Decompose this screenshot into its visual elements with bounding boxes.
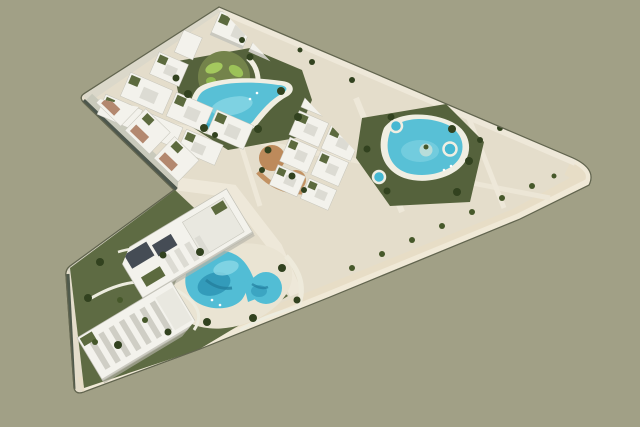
- scene-svg: [0, 0, 640, 427]
- tree: [254, 125, 262, 133]
- tree: [239, 37, 245, 43]
- tree: [349, 77, 355, 83]
- shrub: [424, 145, 429, 150]
- shrub: [499, 195, 505, 201]
- site-plan-render: [0, 0, 640, 427]
- tree: [364, 146, 371, 153]
- tree: [247, 54, 254, 61]
- shrub: [349, 265, 355, 271]
- shrub: [439, 223, 445, 229]
- sun-lounger: [450, 165, 453, 168]
- tree: [165, 329, 172, 336]
- tree: [265, 147, 272, 154]
- east-pool-highlight: [401, 140, 439, 162]
- tree: [114, 341, 122, 349]
- shrub: [409, 237, 415, 243]
- tree: [160, 252, 167, 259]
- tree: [301, 187, 307, 193]
- shrub: [142, 317, 148, 323]
- tree: [259, 167, 265, 173]
- tree: [294, 297, 301, 304]
- tree: [298, 48, 303, 53]
- tree: [203, 318, 211, 326]
- shrub: [379, 251, 385, 257]
- tree: [477, 137, 483, 143]
- tree: [388, 114, 395, 121]
- sun-lounger: [256, 92, 259, 95]
- sun-lounger: [219, 304, 222, 307]
- tree: [249, 314, 257, 322]
- tree: [448, 125, 456, 133]
- shrub: [92, 339, 98, 345]
- spa-pool: [390, 120, 402, 132]
- shrub: [117, 297, 123, 303]
- tree: [196, 248, 204, 256]
- tree: [467, 107, 473, 113]
- tree: [453, 188, 461, 196]
- sun-lounger: [211, 299, 214, 302]
- tree: [465, 157, 473, 165]
- shrub: [529, 183, 535, 189]
- tree: [294, 113, 302, 121]
- tree: [384, 188, 391, 195]
- tree: [309, 59, 315, 65]
- tree: [184, 90, 192, 98]
- tree: [212, 132, 218, 138]
- tree: [289, 173, 296, 180]
- tree: [277, 87, 285, 95]
- shrub: [552, 174, 557, 179]
- tree: [200, 124, 208, 132]
- tree: [278, 264, 286, 272]
- sun-lounger: [249, 98, 252, 101]
- spa-pool: [444, 143, 457, 156]
- tree: [132, 375, 138, 381]
- shrub: [469, 209, 475, 215]
- tree: [84, 294, 92, 302]
- spa-pool: [373, 171, 385, 183]
- tree: [96, 258, 104, 266]
- tree: [173, 75, 180, 82]
- sun-lounger: [443, 169, 446, 172]
